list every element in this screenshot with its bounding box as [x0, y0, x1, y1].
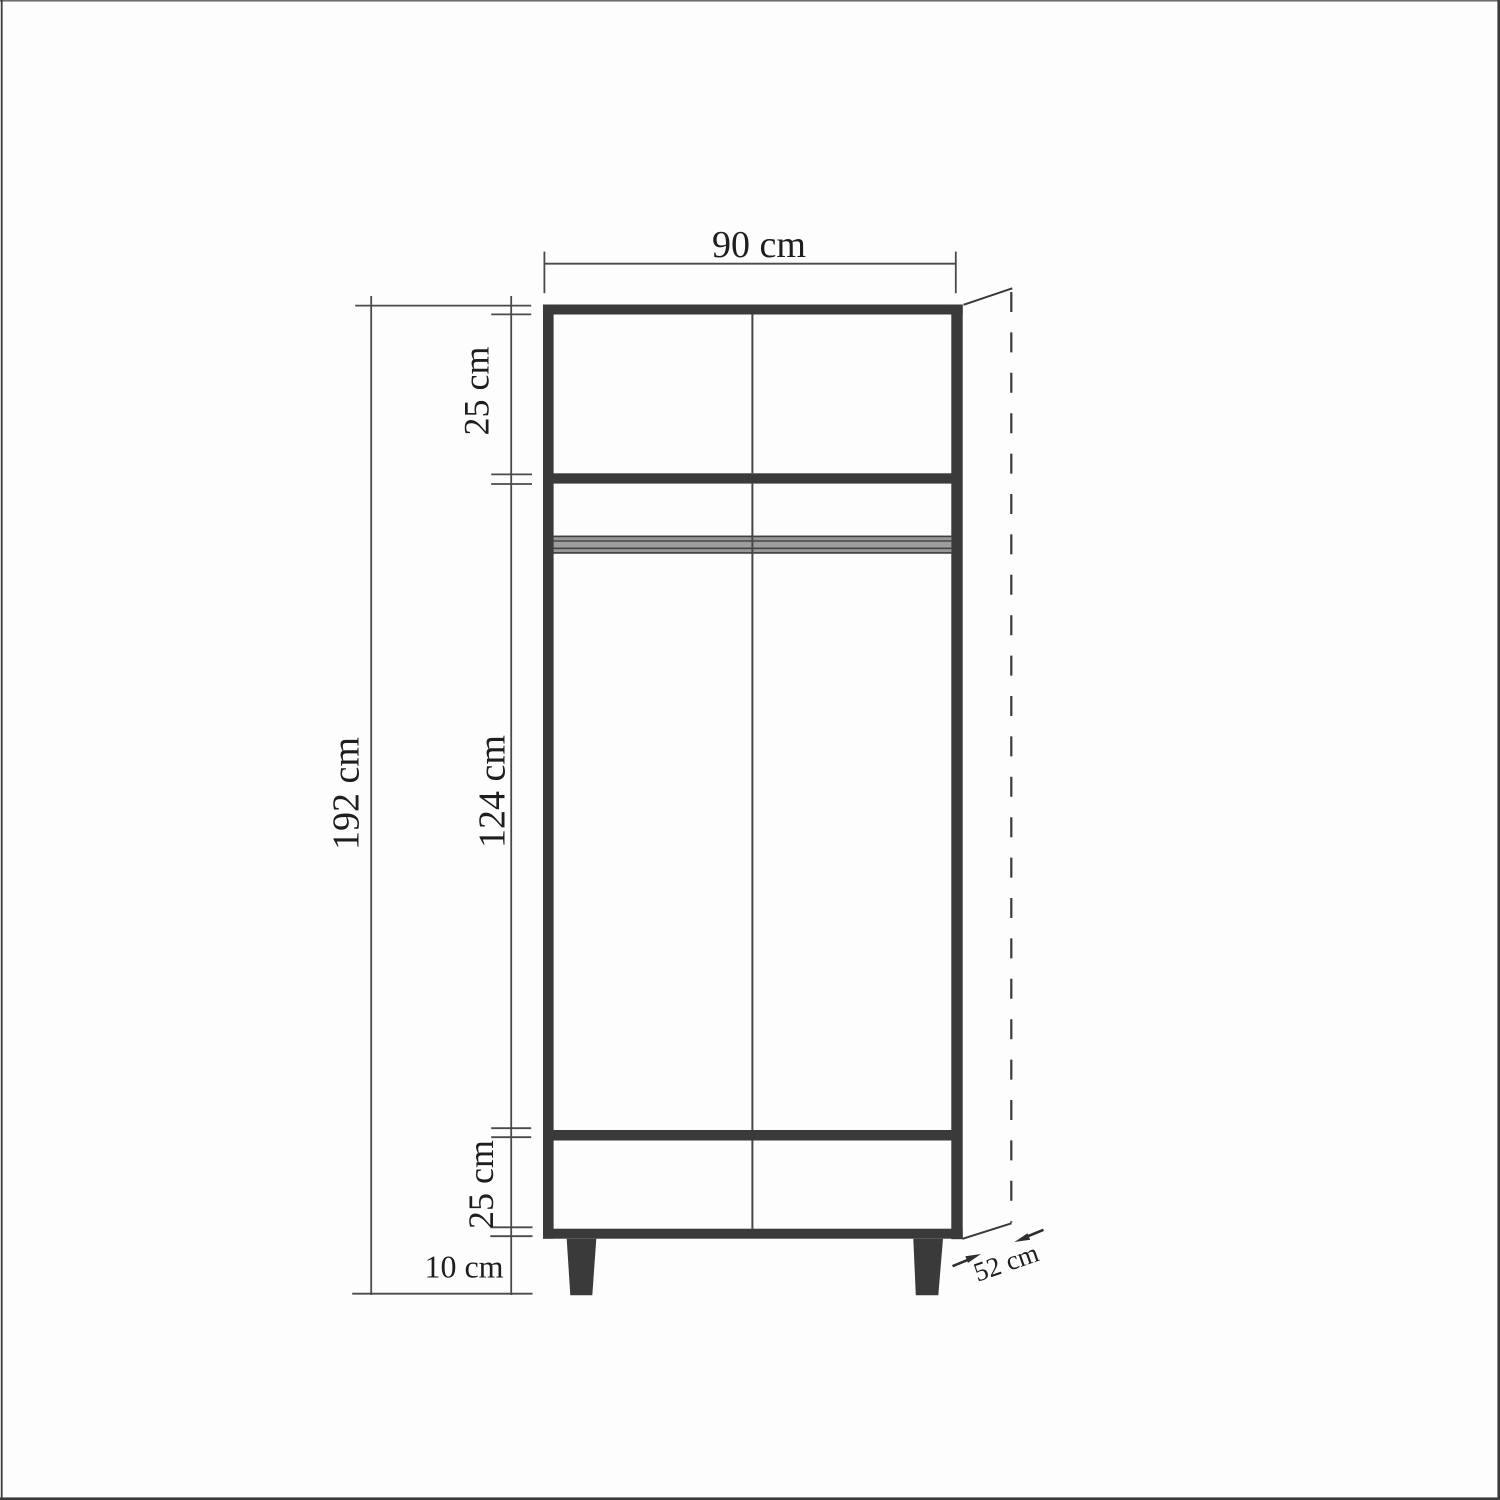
svg-text:192 cm: 192 cm [326, 737, 368, 850]
svg-text:25 cm: 25 cm [457, 347, 497, 436]
svg-text:90 cm: 90 cm [712, 224, 806, 266]
svg-text:25 cm: 25 cm [461, 1140, 501, 1229]
svg-text:10 cm: 10 cm [424, 1249, 503, 1285]
svg-text:124 cm: 124 cm [472, 735, 514, 848]
